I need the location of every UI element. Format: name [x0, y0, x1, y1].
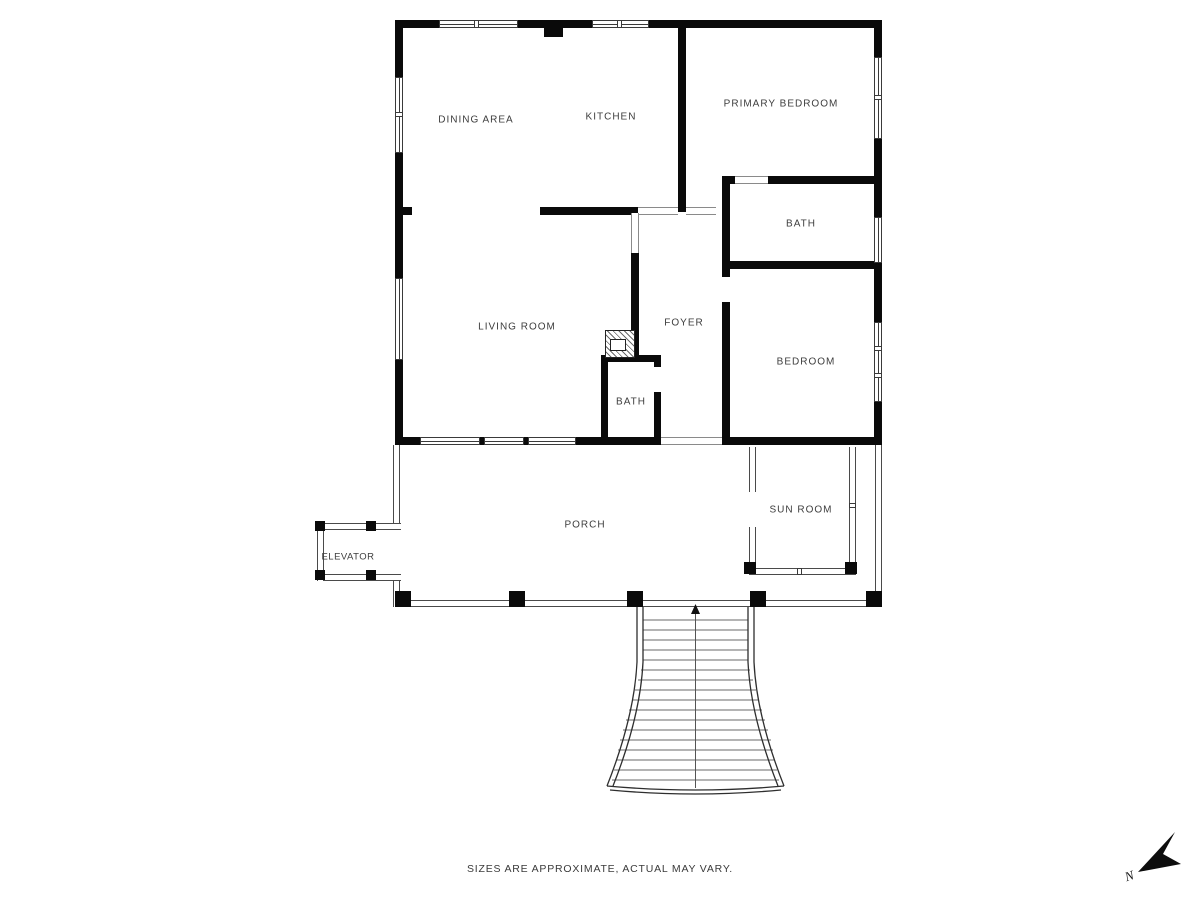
- wall-bath2-right-a: [654, 355, 661, 367]
- wall-kitchen-primary: [678, 28, 686, 212]
- window-bottom-living-1: [420, 437, 480, 445]
- sunroom-rail-bottom: [749, 568, 856, 575]
- wall-stub-kitchen: [544, 28, 563, 37]
- compass-n-label: N: [1122, 867, 1137, 885]
- window-divider: [874, 95, 882, 100]
- sunroom-post: [744, 562, 756, 574]
- wall-bath-foyer: [722, 176, 730, 269]
- porch-post: [395, 591, 411, 607]
- room-label-dining-area: DINING AREA: [438, 115, 513, 126]
- room-label-sun-room: SUN ROOM: [770, 505, 833, 516]
- elevator-rail-bottom: [317, 574, 401, 581]
- elevator-post: [315, 521, 325, 531]
- window-right-bedroom: [874, 322, 882, 402]
- porch-rail-left-upper: [393, 445, 400, 525]
- window-divider: [474, 20, 479, 28]
- window-divider: [849, 503, 856, 508]
- floor-plan: DINING AREA KITCHEN PRIMARY BEDROOM BATH…: [0, 0, 1200, 900]
- room-label-bedroom: BEDROOM: [777, 357, 836, 368]
- elevator-post: [315, 570, 325, 580]
- porch-post: [509, 591, 525, 607]
- window-divider: [797, 568, 802, 575]
- wall-kitchen-living: [540, 207, 638, 215]
- disclaimer-text: SIZES ARE APPROXIMATE, ACTUAL MAY VARY.: [467, 863, 733, 875]
- elevator-post: [366, 521, 376, 531]
- wall-bath-bedroom: [722, 261, 874, 269]
- opening-foyer-hall: [686, 207, 716, 215]
- wall-bath2-right-b: [654, 392, 661, 445]
- window-bottom-living-3: [528, 437, 576, 445]
- window-divider: [395, 112, 403, 117]
- room-label-elevator: ELEVATOR: [321, 552, 374, 563]
- room-label-foyer: FOYER: [664, 318, 703, 329]
- opening-living-foyer: [631, 213, 639, 253]
- north-arrow-icon: N: [1120, 828, 1184, 882]
- porch-post: [866, 591, 882, 607]
- porch-rail-right: [875, 445, 882, 607]
- room-label-bath-upper: BATH: [786, 219, 816, 230]
- window-divider: [617, 20, 622, 28]
- room-label-kitchen: KITCHEN: [586, 112, 637, 123]
- room-label-porch: PORCH: [564, 520, 605, 531]
- wall-bedroom-left-b: [722, 302, 730, 445]
- elevator-rail-top: [317, 523, 401, 530]
- room-label-primary-bedroom: PRIMARY BEDROOM: [724, 99, 839, 110]
- window-divider: [874, 346, 882, 351]
- door-bath2: [654, 367, 661, 392]
- room-label-living-room: LIVING ROOM: [478, 322, 556, 333]
- entry-stairs: [595, 600, 800, 800]
- wall-bedroom-left-a: [722, 269, 730, 277]
- wall-bath2-left: [601, 355, 608, 445]
- sunroom-post: [845, 562, 857, 574]
- door-primary-bath: [735, 176, 768, 184]
- sunroom-rail-left-a: [749, 447, 756, 492]
- stairs-up-arrow-icon: [691, 604, 700, 614]
- door-bedroom: [722, 277, 730, 302]
- window-bottom-living-2: [484, 437, 524, 445]
- door-foyer-porch: [661, 437, 722, 445]
- window-right-bath: [874, 217, 882, 263]
- elevator-post: [366, 570, 376, 580]
- wall-stub-dining-living: [395, 207, 412, 215]
- sunroom-rail-right: [849, 447, 856, 575]
- window-divider: [874, 373, 882, 378]
- window-left-living: [395, 278, 403, 360]
- opening-kitchen-foyer: [638, 207, 678, 215]
- room-label-bath-lower: BATH: [616, 397, 646, 408]
- chimney-flue: [610, 339, 626, 351]
